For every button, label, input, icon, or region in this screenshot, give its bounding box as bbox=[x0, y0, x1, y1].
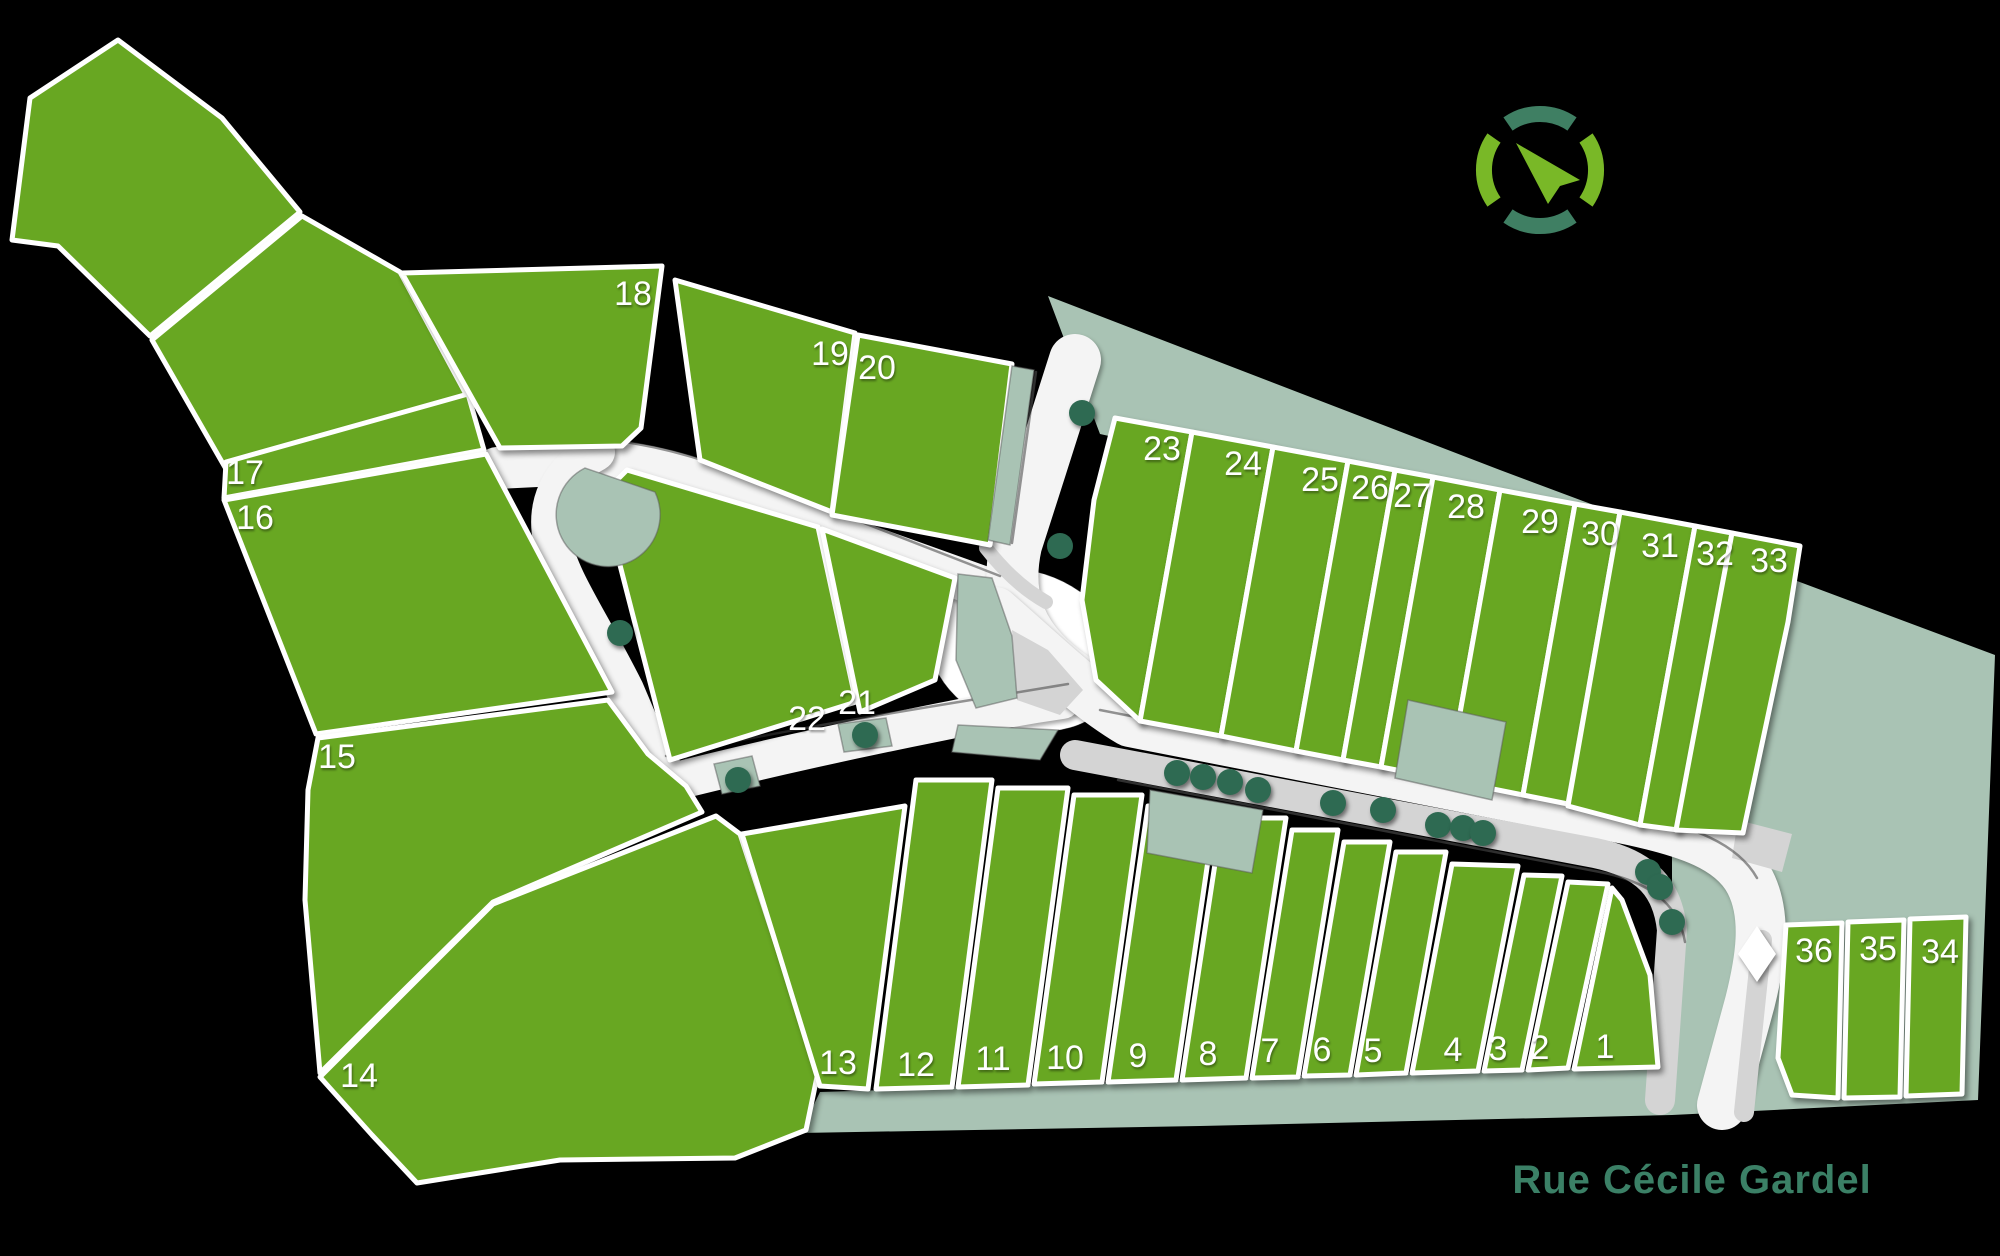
tree-icon bbox=[725, 767, 751, 793]
lot-label-36: 36 bbox=[1795, 932, 1833, 970]
lot-label-14: 14 bbox=[340, 1057, 378, 1095]
lot-label-19: 19 bbox=[811, 335, 849, 373]
compass-arc-left bbox=[1484, 138, 1494, 202]
lot-label-21: 21 bbox=[838, 684, 876, 722]
lot-label-10: 10 bbox=[1046, 1039, 1084, 1077]
tree-icon bbox=[1470, 820, 1496, 846]
lot-label-6: 6 bbox=[1313, 1031, 1332, 1069]
tree-icon bbox=[1164, 760, 1190, 786]
tree-icon bbox=[1425, 812, 1451, 838]
lot-label-5: 5 bbox=[1364, 1032, 1383, 1070]
compass-arc-top bbox=[1508, 114, 1572, 124]
lot-label-15: 15 bbox=[318, 738, 356, 776]
lot-label-11: 11 bbox=[975, 1040, 1010, 1078]
lot-label-31: 31 bbox=[1641, 527, 1679, 565]
lot-label-28: 28 bbox=[1447, 488, 1485, 526]
tree-icon bbox=[1069, 400, 1095, 426]
sage-junction-south bbox=[952, 725, 1058, 760]
tree-icon bbox=[1320, 790, 1346, 816]
lot-label-35: 35 bbox=[1859, 930, 1897, 968]
tree-icon bbox=[1659, 909, 1685, 935]
lot-label-9: 9 bbox=[1129, 1037, 1148, 1075]
tree-icon bbox=[1647, 874, 1673, 900]
street-name-label: Rue Cécile Gardel bbox=[1512, 1158, 1871, 1202]
lot-label-23: 23 bbox=[1143, 430, 1181, 468]
lot-label-13: 13 bbox=[819, 1044, 857, 1082]
lot-label-12: 12 bbox=[897, 1046, 935, 1084]
tree-icon bbox=[1217, 769, 1243, 795]
lot-label-3: 3 bbox=[1489, 1030, 1508, 1068]
lot-label-7: 7 bbox=[1261, 1032, 1280, 1070]
lot-label-8: 8 bbox=[1199, 1035, 1218, 1073]
compass-arc-right bbox=[1586, 138, 1596, 202]
compass-north-pointer-icon bbox=[1484, 114, 1596, 226]
lot-label-24: 24 bbox=[1224, 445, 1262, 483]
tree-icon bbox=[1370, 797, 1396, 823]
lot-label-34: 34 bbox=[1921, 933, 1959, 971]
lot-label-22: 22 bbox=[788, 700, 826, 738]
tree-icon bbox=[1047, 533, 1073, 559]
tree-icon bbox=[852, 722, 878, 748]
lot-label-27: 27 bbox=[1393, 477, 1431, 515]
compass-arc-bottom bbox=[1508, 216, 1572, 226]
lot-label-29: 29 bbox=[1521, 503, 1559, 541]
tree-icon bbox=[1190, 764, 1216, 790]
lot-label-16: 16 bbox=[236, 499, 274, 537]
lot-label-26: 26 bbox=[1351, 469, 1389, 507]
lot-label-1: 1 bbox=[1596, 1028, 1615, 1066]
lot-label-33: 33 bbox=[1750, 542, 1788, 580]
tree-icon bbox=[1245, 777, 1271, 803]
lot-label-30: 30 bbox=[1581, 515, 1619, 553]
lot-label-2: 2 bbox=[1531, 1029, 1550, 1067]
lot-label-25: 25 bbox=[1301, 461, 1339, 499]
lot-label-32: 32 bbox=[1696, 535, 1734, 573]
compass-needle bbox=[1516, 143, 1580, 204]
lot-label-17: 17 bbox=[226, 454, 264, 492]
lot-label-18: 18 bbox=[614, 275, 652, 313]
lot-label-4: 4 bbox=[1444, 1031, 1463, 1069]
subdivision-site-plan-map: 1 2 3 4 5 6 7 8 9 10 11 12 13 14 15 16 1… bbox=[0, 0, 2000, 1256]
lot-label-20: 20 bbox=[858, 349, 896, 387]
tree-icon bbox=[607, 620, 633, 646]
